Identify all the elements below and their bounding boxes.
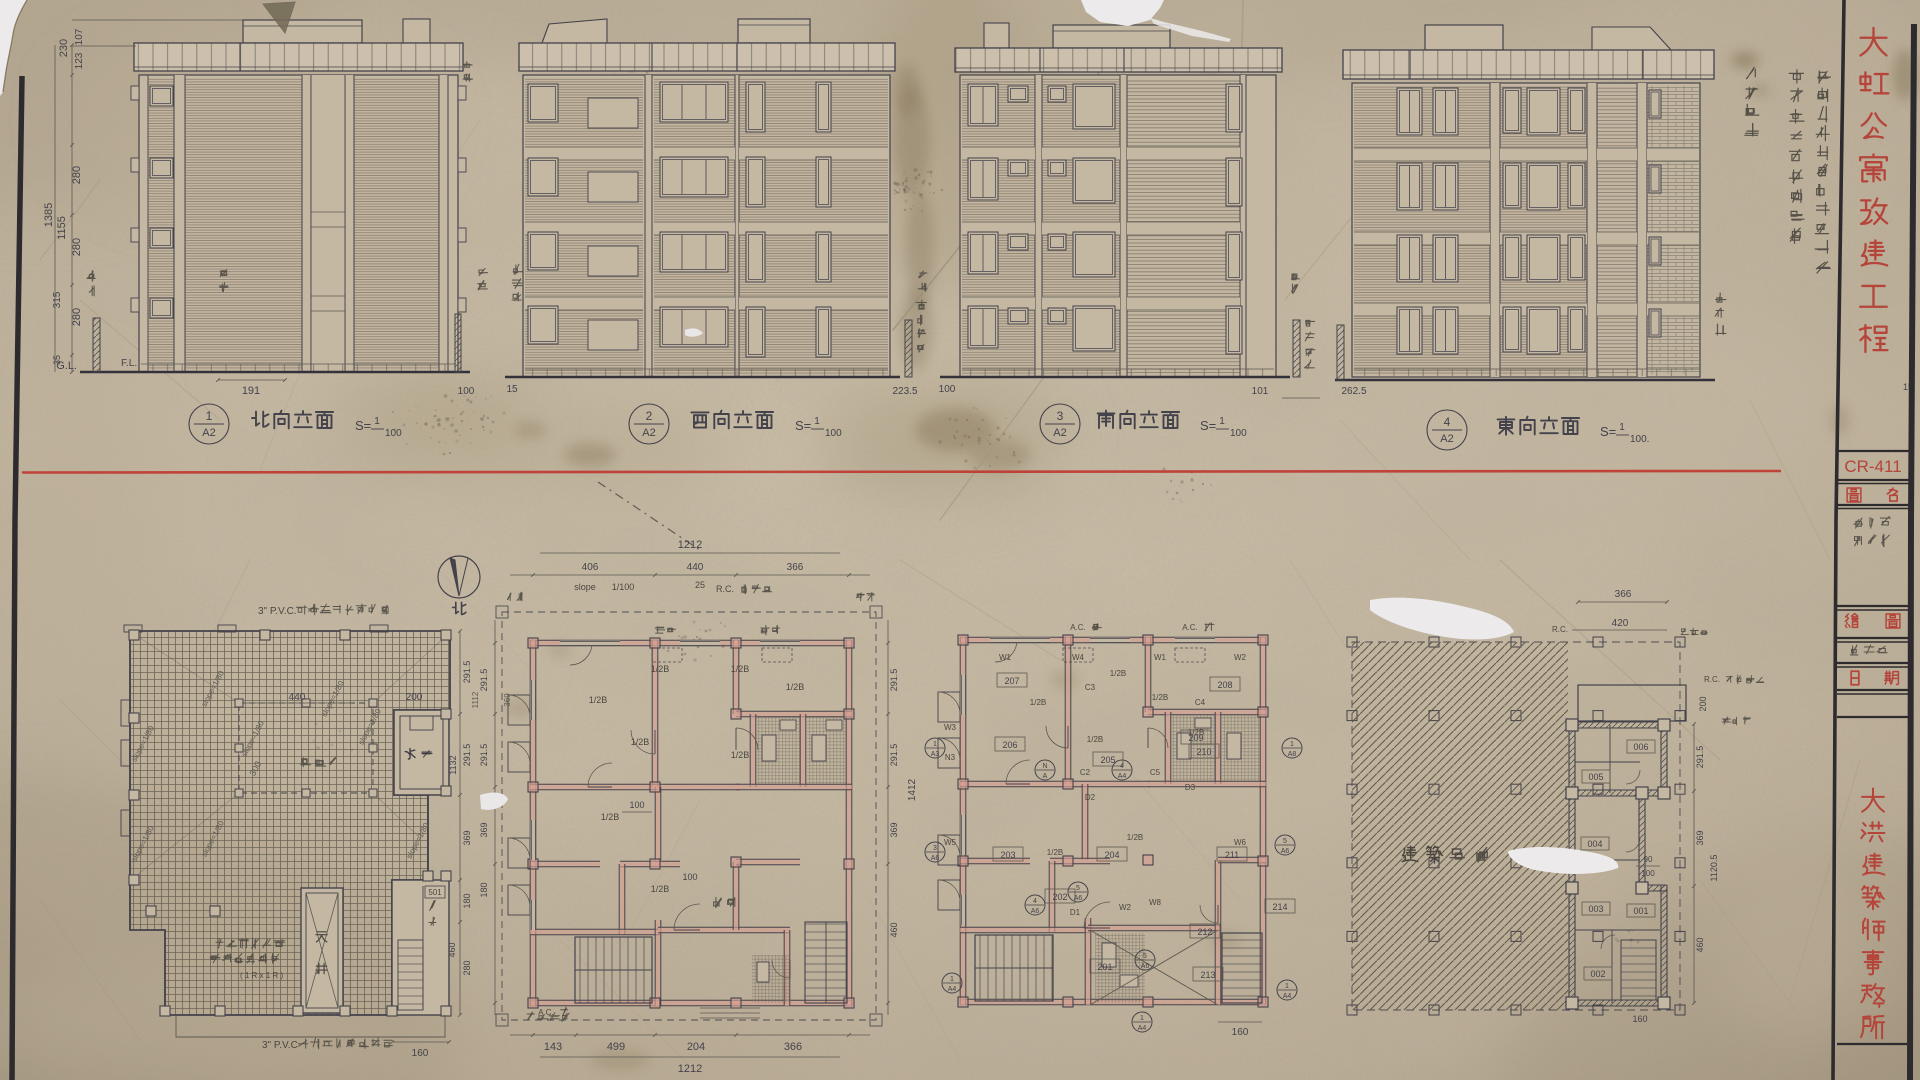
svg-text:1: 1 <box>1619 422 1625 433</box>
svg-text:202: 202 <box>1052 892 1067 902</box>
svg-text:180: 180 <box>479 882 489 897</box>
svg-text:A6: A6 <box>1031 908 1040 915</box>
svg-text:4: 4 <box>1120 763 1124 770</box>
svg-text:100.: 100. <box>1630 434 1649 445</box>
svg-text:R.C.: R.C. <box>1552 625 1568 634</box>
svg-text:366: 366 <box>784 1041 802 1053</box>
svg-text:C2: C2 <box>1080 768 1091 777</box>
svg-text:1/2B: 1/2B <box>731 664 750 674</box>
svg-text:A2: A2 <box>202 427 215 439</box>
svg-text:W6: W6 <box>1234 838 1247 847</box>
svg-text:A4: A4 <box>948 986 957 993</box>
svg-text:W3: W3 <box>944 723 957 732</box>
svg-text:100: 100 <box>629 800 644 810</box>
svg-text:291.5: 291.5 <box>479 744 489 767</box>
svg-text:369: 369 <box>462 830 472 845</box>
svg-text:1212: 1212 <box>678 539 702 551</box>
svg-text:1132: 1132 <box>448 755 458 774</box>
svg-text:210: 210 <box>1196 747 1211 757</box>
svg-text:D2: D2 <box>1085 793 1096 802</box>
svg-text:100: 100 <box>1230 428 1247 439</box>
svg-text:W1: W1 <box>1154 653 1167 662</box>
svg-text:A6: A6 <box>931 855 940 862</box>
svg-text:A.C.: A.C. <box>1182 623 1198 632</box>
svg-text:280: 280 <box>71 238 83 256</box>
svg-text:1: 1 <box>950 976 954 983</box>
svg-text:3" P.V.C: 3" P.V.C <box>262 1040 298 1051</box>
svg-text:W2: W2 <box>1234 653 1247 662</box>
svg-text:3" P.V.C.: 3" P.V.C. <box>258 606 297 617</box>
svg-text:D1: D1 <box>1070 908 1081 917</box>
svg-text:420: 420 <box>1612 618 1629 629</box>
svg-text:100: 100 <box>825 428 842 439</box>
svg-text:1120.5: 1120.5 <box>1709 855 1719 882</box>
svg-text:1/2B: 1/2B <box>651 884 670 894</box>
svg-text:R.C.: R.C. <box>1704 675 1720 684</box>
svg-text:369: 369 <box>479 822 489 837</box>
svg-text:4: 4 <box>1444 415 1451 429</box>
svg-text:1212: 1212 <box>678 1063 702 1075</box>
svg-text:A.C.: A.C. <box>538 1008 554 1017</box>
svg-text:280: 280 <box>71 308 83 326</box>
svg-text:143: 143 <box>544 1041 562 1053</box>
svg-text:160: 160 <box>1632 1014 1647 1024</box>
svg-text:5: 5 <box>1076 885 1080 892</box>
svg-text:214: 214 <box>1272 902 1287 912</box>
svg-text:A4: A4 <box>1118 773 1127 780</box>
svg-text:291.5: 291.5 <box>462 744 472 767</box>
svg-text:1/2B: 1/2B <box>589 695 608 705</box>
svg-text:191: 191 <box>242 385 260 397</box>
svg-text:223.5: 223.5 <box>892 386 917 397</box>
svg-text:203: 203 <box>1000 850 1015 860</box>
svg-text:499: 499 <box>607 1041 625 1053</box>
svg-text:369: 369 <box>1695 830 1705 845</box>
svg-text:291.5: 291.5 <box>1695 746 1705 769</box>
svg-text:1/2B: 1/2B <box>1152 693 1168 702</box>
svg-text:1/2B: 1/2B <box>1188 728 1204 737</box>
svg-text:S=: S= <box>1600 424 1616 439</box>
svg-text:A6: A6 <box>1281 848 1290 855</box>
svg-text:207: 207 <box>1004 676 1019 686</box>
svg-text:440: 440 <box>289 692 306 703</box>
svg-text:C3: C3 <box>1085 683 1096 692</box>
svg-text:501: 501 <box>428 888 442 897</box>
svg-text:N: N <box>1042 763 1047 770</box>
svg-text:1: 1 <box>374 416 380 427</box>
svg-text:280: 280 <box>462 960 472 975</box>
svg-text:D3: D3 <box>1185 783 1196 792</box>
svg-text:101: 101 <box>1252 386 1269 397</box>
svg-text:100: 100 <box>385 428 402 439</box>
svg-text:1: 1 <box>933 741 937 748</box>
svg-text:004: 004 <box>1587 839 1602 849</box>
svg-text:1/2B: 1/2B <box>631 737 650 747</box>
svg-text:180: 180 <box>462 893 472 908</box>
svg-text:200: 200 <box>406 692 423 703</box>
svg-text:204: 204 <box>1104 850 1119 860</box>
svg-text:1: 1 <box>1285 983 1289 990</box>
svg-text:15: 15 <box>506 384 518 395</box>
svg-text:3: 3 <box>933 845 937 852</box>
svg-text:C4: C4 <box>1195 698 1206 707</box>
svg-text:F.L.: F.L. <box>121 358 137 369</box>
svg-text:280: 280 <box>71 166 83 184</box>
svg-text:291.5: 291.5 <box>479 669 489 692</box>
svg-text:25: 25 <box>695 580 705 590</box>
svg-text:1/2B: 1/2B <box>651 664 670 674</box>
svg-text:369: 369 <box>503 693 512 707</box>
svg-text:1155: 1155 <box>56 216 68 240</box>
svg-text:1412: 1412 <box>907 778 918 801</box>
svg-text:460: 460 <box>889 922 899 937</box>
svg-text:A2: A2 <box>1053 427 1066 439</box>
svg-text:291.5: 291.5 <box>462 661 472 684</box>
svg-text:( 1 R x 1 R ): ( 1 R x 1 R ) <box>240 971 283 980</box>
svg-text:107: 107 <box>74 28 85 45</box>
svg-text:1/2B: 1/2B <box>1047 848 1063 857</box>
svg-text:001: 001 <box>1633 906 1648 916</box>
svg-text:205: 205 <box>1100 755 1115 765</box>
svg-text:R.C.: R.C. <box>716 584 734 594</box>
svg-text:A4: A4 <box>1283 993 1292 1000</box>
svg-text:262.5: 262.5 <box>1341 386 1366 397</box>
svg-text:5: 5 <box>1143 953 1147 960</box>
svg-text:A3: A3 <box>931 751 940 758</box>
svg-text:1: 1 <box>206 409 213 423</box>
svg-text:160: 160 <box>1232 1027 1249 1038</box>
svg-text:366: 366 <box>787 562 804 573</box>
svg-text:1112: 1112 <box>471 691 480 708</box>
svg-text:369: 369 <box>889 822 899 837</box>
svg-text:100: 100 <box>458 386 475 397</box>
svg-text:slope: slope <box>574 582 596 592</box>
svg-text:1: 1 <box>814 416 820 427</box>
svg-text:1/2B: 1/2B <box>1087 735 1103 744</box>
svg-text:291.5: 291.5 <box>889 744 899 767</box>
svg-text:W5: W5 <box>944 838 957 847</box>
svg-text:S=: S= <box>1200 418 1216 433</box>
svg-text:291.5: 291.5 <box>889 669 899 692</box>
svg-text:200: 200 <box>1698 696 1708 711</box>
svg-text:212: 212 <box>1197 927 1212 937</box>
svg-text:1: 1 <box>1140 1015 1144 1022</box>
svg-text:204: 204 <box>687 1041 705 1053</box>
svg-text:A6: A6 <box>1074 895 1083 902</box>
svg-text:A4: A4 <box>1138 1025 1147 1032</box>
svg-text:4: 4 <box>1033 898 1037 905</box>
svg-text:160: 160 <box>412 1048 429 1059</box>
svg-text:N3: N3 <box>945 753 956 762</box>
svg-text:W1: W1 <box>999 653 1012 662</box>
svg-text:213: 213 <box>1200 970 1215 980</box>
svg-text:A: A <box>1043 773 1048 780</box>
svg-text:A8: A8 <box>1288 751 1297 758</box>
svg-text:440: 440 <box>687 562 704 573</box>
svg-text:3: 3 <box>1057 409 1064 423</box>
svg-text:W2: W2 <box>1119 903 1132 912</box>
svg-text:201: 201 <box>1097 962 1112 972</box>
svg-text:A2: A2 <box>642 427 655 439</box>
svg-text:1: 1 <box>1219 416 1225 427</box>
svg-text:S=: S= <box>355 418 371 433</box>
svg-text:A.C.: A.C. <box>1070 623 1086 632</box>
svg-text:211: 211 <box>1225 850 1239 860</box>
svg-text:100: 100 <box>939 384 956 395</box>
svg-text:1/2B: 1/2B <box>786 682 805 692</box>
svg-text:460: 460 <box>1695 937 1705 952</box>
svg-text:002: 002 <box>1590 969 1605 979</box>
svg-text:1/100: 1/100 <box>612 582 635 592</box>
svg-text:1/2B: 1/2B <box>1110 669 1126 678</box>
svg-text:A6: A6 <box>1141 963 1150 970</box>
svg-text:1/2B: 1/2B <box>1127 833 1143 842</box>
svg-text:1/2B: 1/2B <box>731 750 750 760</box>
svg-text:5: 5 <box>1283 838 1287 845</box>
svg-text:230: 230 <box>58 39 70 57</box>
svg-text:W8: W8 <box>1149 898 1162 907</box>
svg-text:1/2B: 1/2B <box>1030 698 1046 707</box>
svg-text:100: 100 <box>682 872 697 882</box>
svg-text:1: 1 <box>1290 741 1294 748</box>
svg-text:006: 006 <box>1633 742 1648 752</box>
svg-text:315: 315 <box>52 291 63 308</box>
svg-text:CR-411: CR-411 <box>1844 457 1901 476</box>
svg-text:1/2B: 1/2B <box>601 812 620 822</box>
svg-text:A2: A2 <box>1440 433 1453 445</box>
svg-text:208: 208 <box>1217 680 1232 690</box>
svg-text:35: 35 <box>52 355 62 365</box>
svg-text:1385: 1385 <box>43 203 55 227</box>
svg-text:S=: S= <box>795 418 811 433</box>
svg-text:W4: W4 <box>1072 653 1085 662</box>
svg-text:003: 003 <box>1588 904 1603 914</box>
svg-text:460: 460 <box>447 942 457 957</box>
svg-text:406: 406 <box>582 562 599 573</box>
svg-text:206: 206 <box>1002 740 1017 750</box>
svg-text:2: 2 <box>646 409 653 423</box>
svg-text:123: 123 <box>74 52 85 69</box>
svg-text:90: 90 <box>1644 855 1653 864</box>
svg-text:366: 366 <box>1615 589 1632 600</box>
svg-text:C5: C5 <box>1150 768 1161 777</box>
svg-text:005: 005 <box>1588 772 1603 782</box>
svg-text:100: 100 <box>1641 869 1655 878</box>
